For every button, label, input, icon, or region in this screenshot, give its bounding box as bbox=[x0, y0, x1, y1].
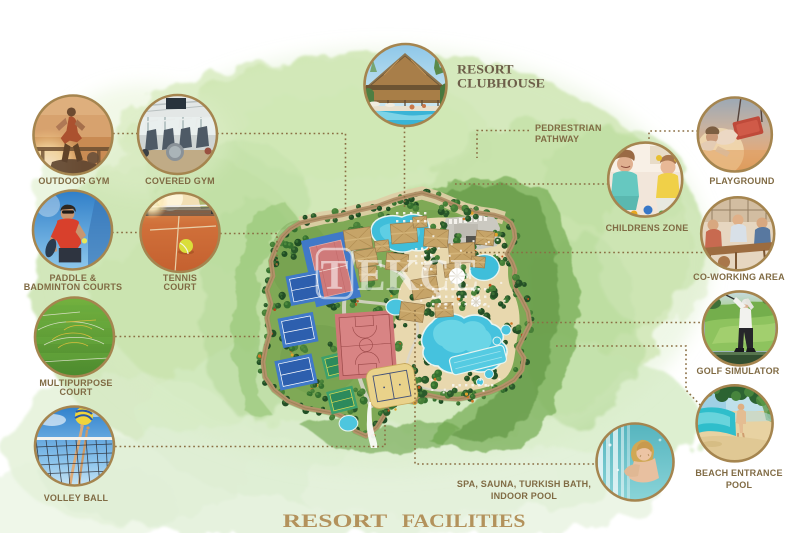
svg-text:RESORT: RESORT bbox=[283, 511, 388, 532]
svg-text:EKÇE: EKÇE bbox=[357, 249, 479, 300]
svg-text:T: T bbox=[320, 253, 348, 299]
svg-text:RESORT: RESORT bbox=[457, 63, 514, 77]
svg-text:CLUBHOUSE: CLUBHOUSE bbox=[457, 77, 545, 91]
svg-text:FACILITIES: FACILITIES bbox=[402, 511, 526, 532]
